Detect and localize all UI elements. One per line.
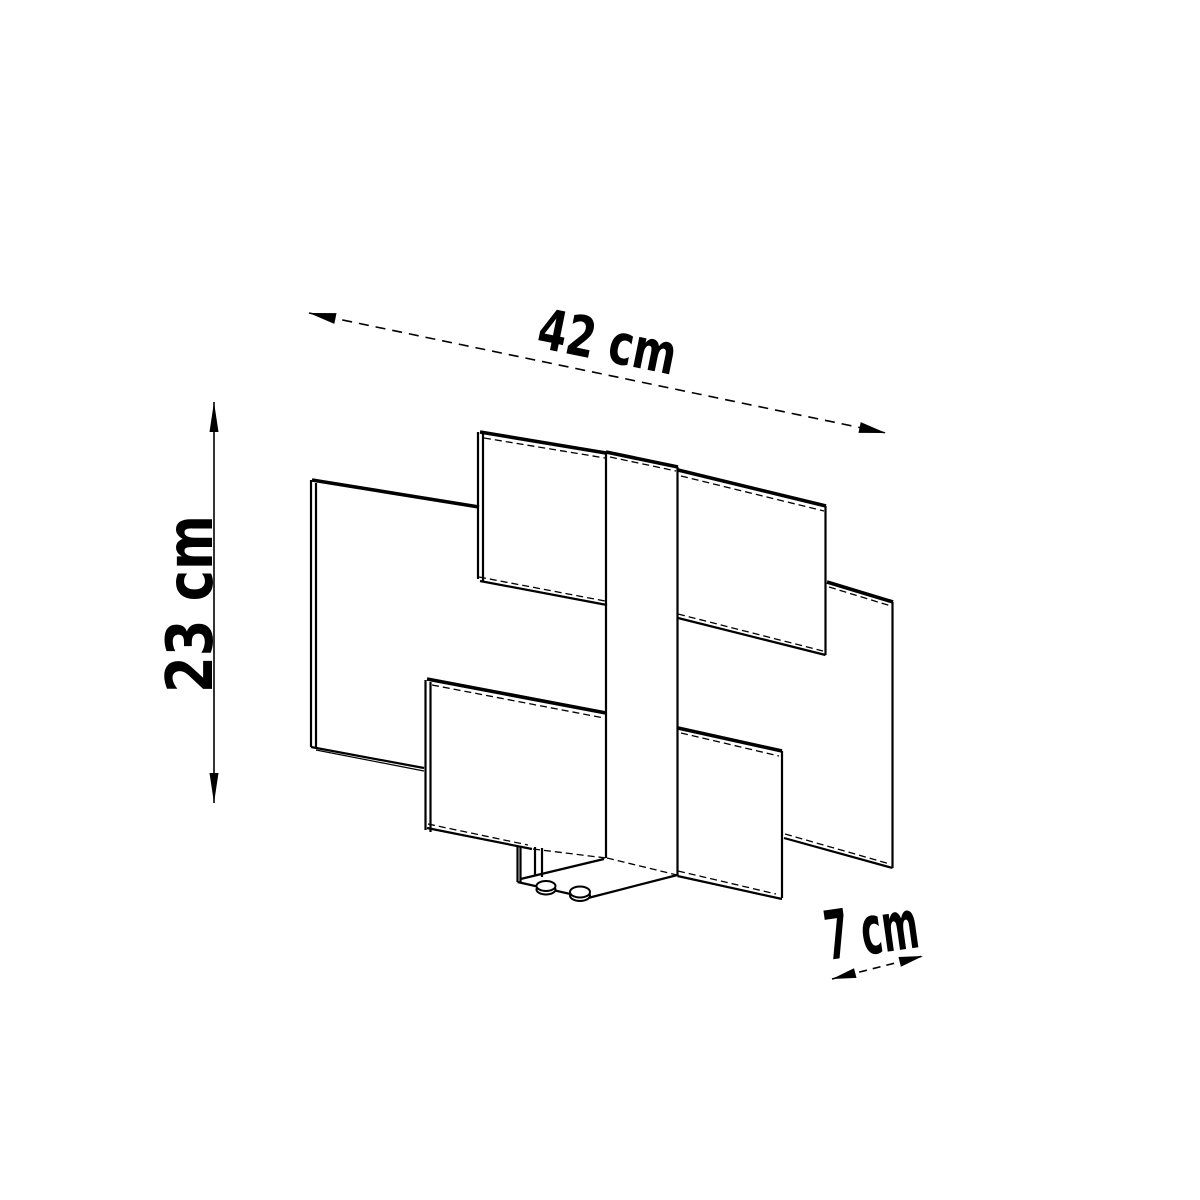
hidden-edge [785,834,890,864]
hidden-edge [607,858,677,875]
hidden-edge [678,614,823,651]
panel-edge [311,747,424,768]
panel-thin-edge [316,750,424,771]
hidden-edge [681,476,824,511]
panel-edge [678,618,826,655]
panel-top-edge [678,470,826,506]
panel-edge [521,859,605,879]
panel-top-edge [678,728,782,751]
lamp-thin-edges [316,750,424,771]
panel-edge [784,838,893,868]
panel-top-edge [312,480,479,507]
dimension-label-depth: 7 cm [819,886,923,977]
hidden-edge [428,824,528,845]
mount-screw [570,887,590,898]
arrowhead-width [309,313,337,324]
hidden-edge [678,871,776,894]
hidden-edge [829,587,891,606]
panel-top-edge [480,432,606,453]
dimension-label-height: 23 cm [154,515,228,693]
arrowhead-width [859,422,887,433]
panel-edge [427,828,532,849]
panel-edge [480,581,607,605]
panel-edge [588,875,678,898]
panel-top-edge [827,582,893,602]
panel-top-edge [606,452,678,467]
lamp-dimension-drawing: 42 cm 23 cm 7 cm [0,0,1200,1200]
hidden-edge [432,685,604,718]
mount-screw [537,881,556,891]
hidden-edge [681,733,779,756]
dimension-label-width: 42 cm [532,297,682,389]
hidden-edge [479,577,605,601]
panel-top-edge [427,679,606,713]
hidden-edge [533,849,606,858]
mount-screws [537,881,591,901]
arrowhead-height [210,773,219,803]
panel-edge [678,876,783,899]
lamp-panel-top-edges [312,432,893,751]
arrowhead-height [210,402,219,432]
diagram-canvas: 42 cm 23 cm 7 cm [0,0,1200,1200]
